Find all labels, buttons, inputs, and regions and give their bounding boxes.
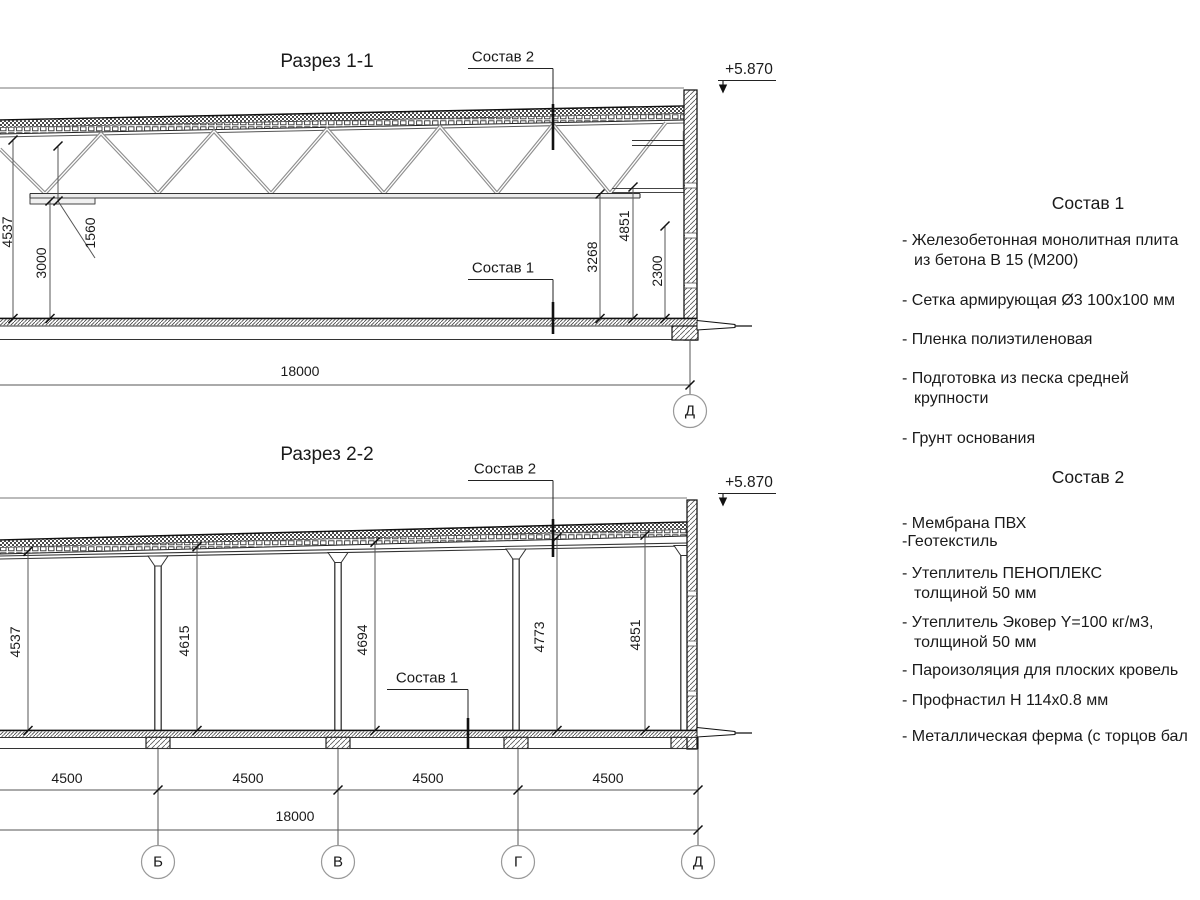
legend2-title: Состав 2 [988,467,1188,488]
section2-dimensions [0,531,703,845]
legend1-title: Состав 1 [988,193,1188,214]
section2-elevation-value: +5.870 [725,474,773,492]
section2-dim-4851: 4851 [627,619,643,650]
section1-title: Разрез 1-1 [280,51,373,73]
section2-callout-leaders [387,481,553,750]
legend1-item-film: - Пленка полиэтиленовая [902,330,1200,350]
section1-dim-2300: 2300 [649,255,665,286]
legend1-item-sand: - Подготовка из песка средней крупности [902,369,1200,408]
legend2-item-vapor-barrier: - Пароизоляция для плоских кровель [902,661,1200,681]
section2-dim-4773: 4773 [531,621,547,652]
section2-dim-4537: 4537 [7,626,23,657]
section1-callout-sostav1: Состав 1 [472,260,534,277]
section2-columns [146,546,698,749]
legend1-item-soil: - Грунт основания [902,429,1200,449]
section2-grid-letter-d: Д [693,854,703,871]
section1-dim-4537: 4537 [0,216,15,247]
section2-dim-overall: 18000 [276,808,315,824]
section2-grid-letter-b: Б [153,854,163,871]
section1-roof-assembly [0,106,684,137]
section2-bay-dim-4: 4500 [592,770,623,786]
legend2-item-penoplex: - Утеплитель ПЕНОПЛЕКС толщиной 50 мм [902,564,1200,603]
section1-parapet-wall [684,90,697,340]
section1-floor-slab [0,319,752,341]
section2-parapet-wall [687,500,697,749]
legend2-item-membrane: - Мембрана ПВХ [902,514,1200,534]
section1-elevation-value: +5.870 [725,61,773,79]
section1-dim-3000: 3000 [33,247,49,278]
section2-bay-dim-3: 4500 [412,770,443,786]
section2-dim-4615: 4615 [176,625,192,656]
section2-elevation-marker [718,494,776,507]
legend2-item-ecover: - Утеплитель Эковер Y=100 кг/м3, толщино… [902,613,1200,652]
legend2-item-profiled-sheet: - Профнастил Н 114x0.8 мм [902,691,1200,711]
legend1-item-mesh: - Сетка армирующая Ø3 100x100 мм [902,291,1200,311]
section1-dim-4851: 4851 [616,210,632,241]
section2-callout-sostav1: Состав 1 [396,670,458,687]
section2-bay-dim-2: 4500 [232,770,263,786]
section1-dim-1560: 1560 [82,217,98,248]
section1-elevation-marker [718,81,776,94]
legend2-item-geotextile: -Геотекстиль [902,532,1200,552]
section1-callout-sostav2: Состав 2 [472,49,534,66]
section1-truss [0,123,685,205]
section2-grid-letter-v: В [333,854,343,871]
section2-floor-slab [0,728,752,749]
blueprint-canvas: Разрез 1-1 Состав 2 Состав 1 +5.870 1800… [0,0,1200,900]
legend1-item-slab: - Железобетонная монолитная плита из бет… [902,231,1200,270]
section2-grid-bubbles [142,846,715,879]
section1-dim-3268: 3268 [584,241,600,272]
section2-dim-4694: 4694 [354,624,370,655]
section2-bay-dim-1: 4500 [51,770,82,786]
section1-dim-overall: 18000 [281,363,320,379]
legend2-item-steel-truss: - Металлическая ферма (с торцов бал [902,727,1200,747]
section2-title: Разрез 2-2 [280,444,373,466]
section2-callout-sostav2: Состав 2 [474,461,536,478]
section1-grid-letter-d: Д [685,403,695,420]
section2-grid-letter-g: Г [514,854,522,871]
section-drawings-linework [0,0,1200,900]
